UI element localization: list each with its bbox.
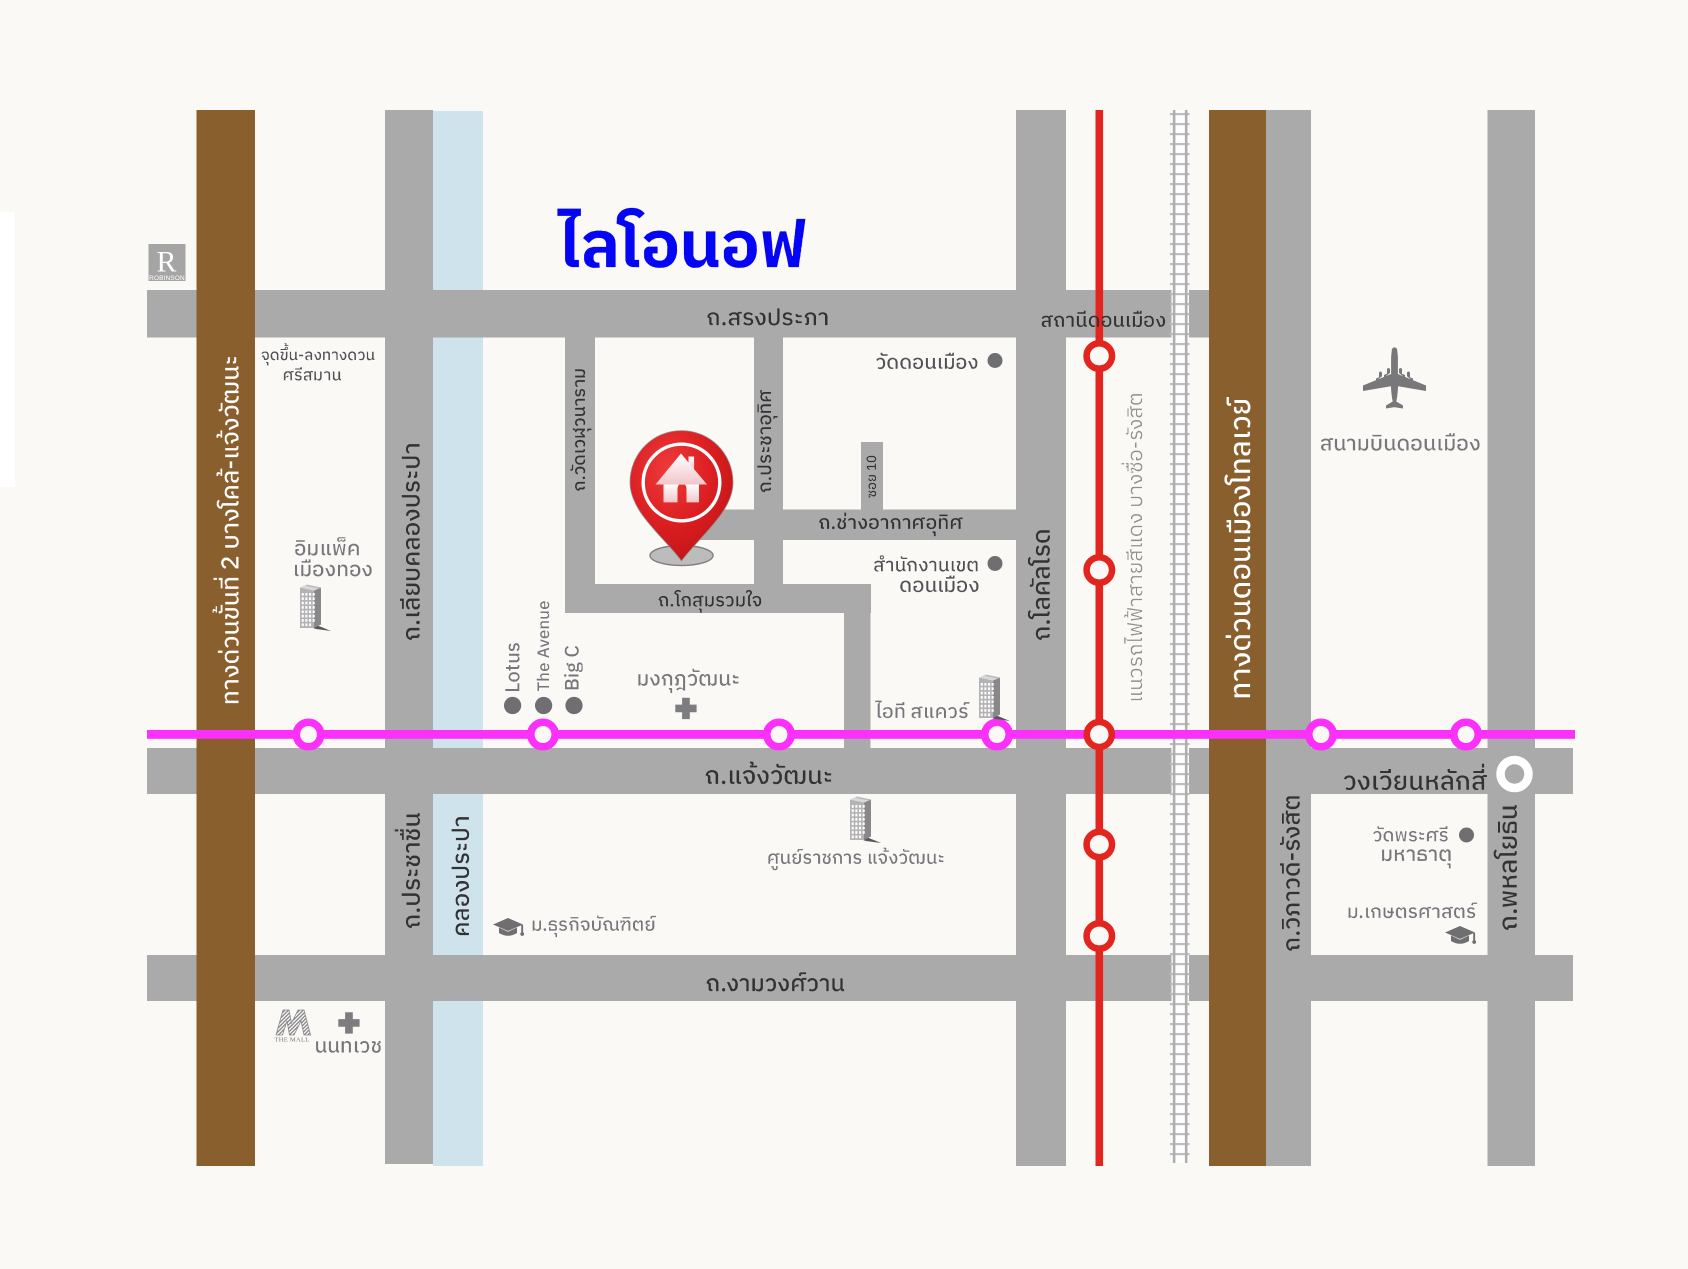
svg-text:THE MALL: THE MALL	[274, 1037, 309, 1044]
svg-text:R: R	[156, 246, 176, 279]
svg-text:ROBINSON: ROBINSON	[149, 275, 185, 282]
